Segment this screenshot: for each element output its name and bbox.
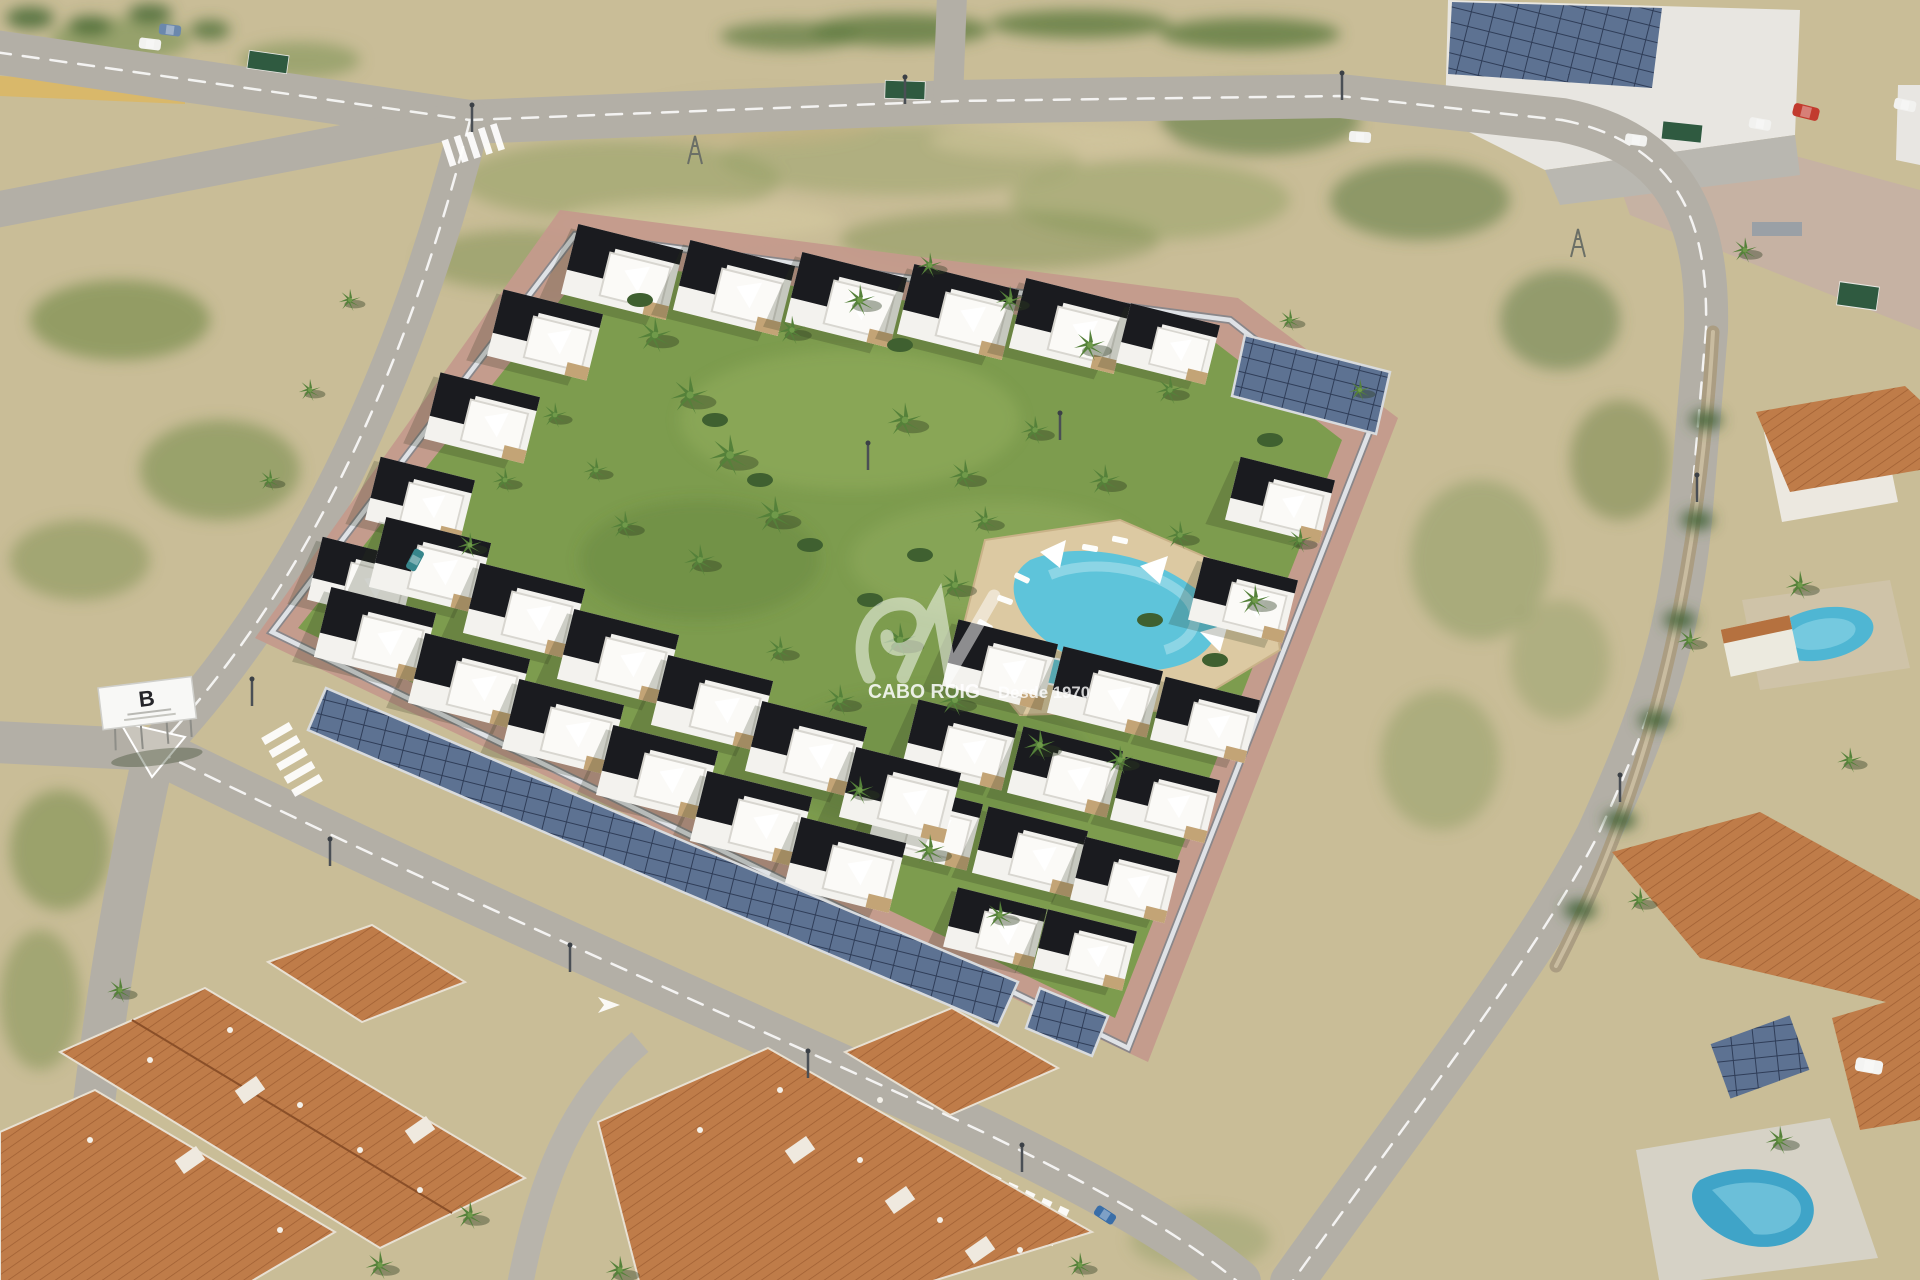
shrub [797, 538, 823, 552]
shrub [1257, 433, 1283, 447]
shrub [887, 338, 913, 352]
shrub [1202, 653, 1228, 667]
north-spur-road [948, 0, 952, 100]
car [1349, 131, 1372, 144]
billboard-logo-letter: B [137, 685, 156, 712]
bus-shelter [1752, 222, 1802, 236]
shrub [907, 548, 933, 562]
watermark-brand: CABO ROIG [868, 681, 980, 703]
road-sign-green [1837, 282, 1880, 311]
shrub [702, 413, 728, 427]
aerial-render-photo: B CABO ROIG Desde 1970 [0, 0, 1920, 1280]
watermark-tagline: Desde 1970 [998, 683, 1090, 702]
warehouse-solar-array [1448, 2, 1662, 88]
small-shed [1896, 85, 1920, 165]
shrub [1137, 613, 1163, 627]
shrub [747, 473, 773, 487]
shrub [627, 293, 653, 307]
road-sign-green [1661, 121, 1703, 143]
aerial-scene: B CABO ROIG Desde 1970 [0, 0, 1920, 1280]
